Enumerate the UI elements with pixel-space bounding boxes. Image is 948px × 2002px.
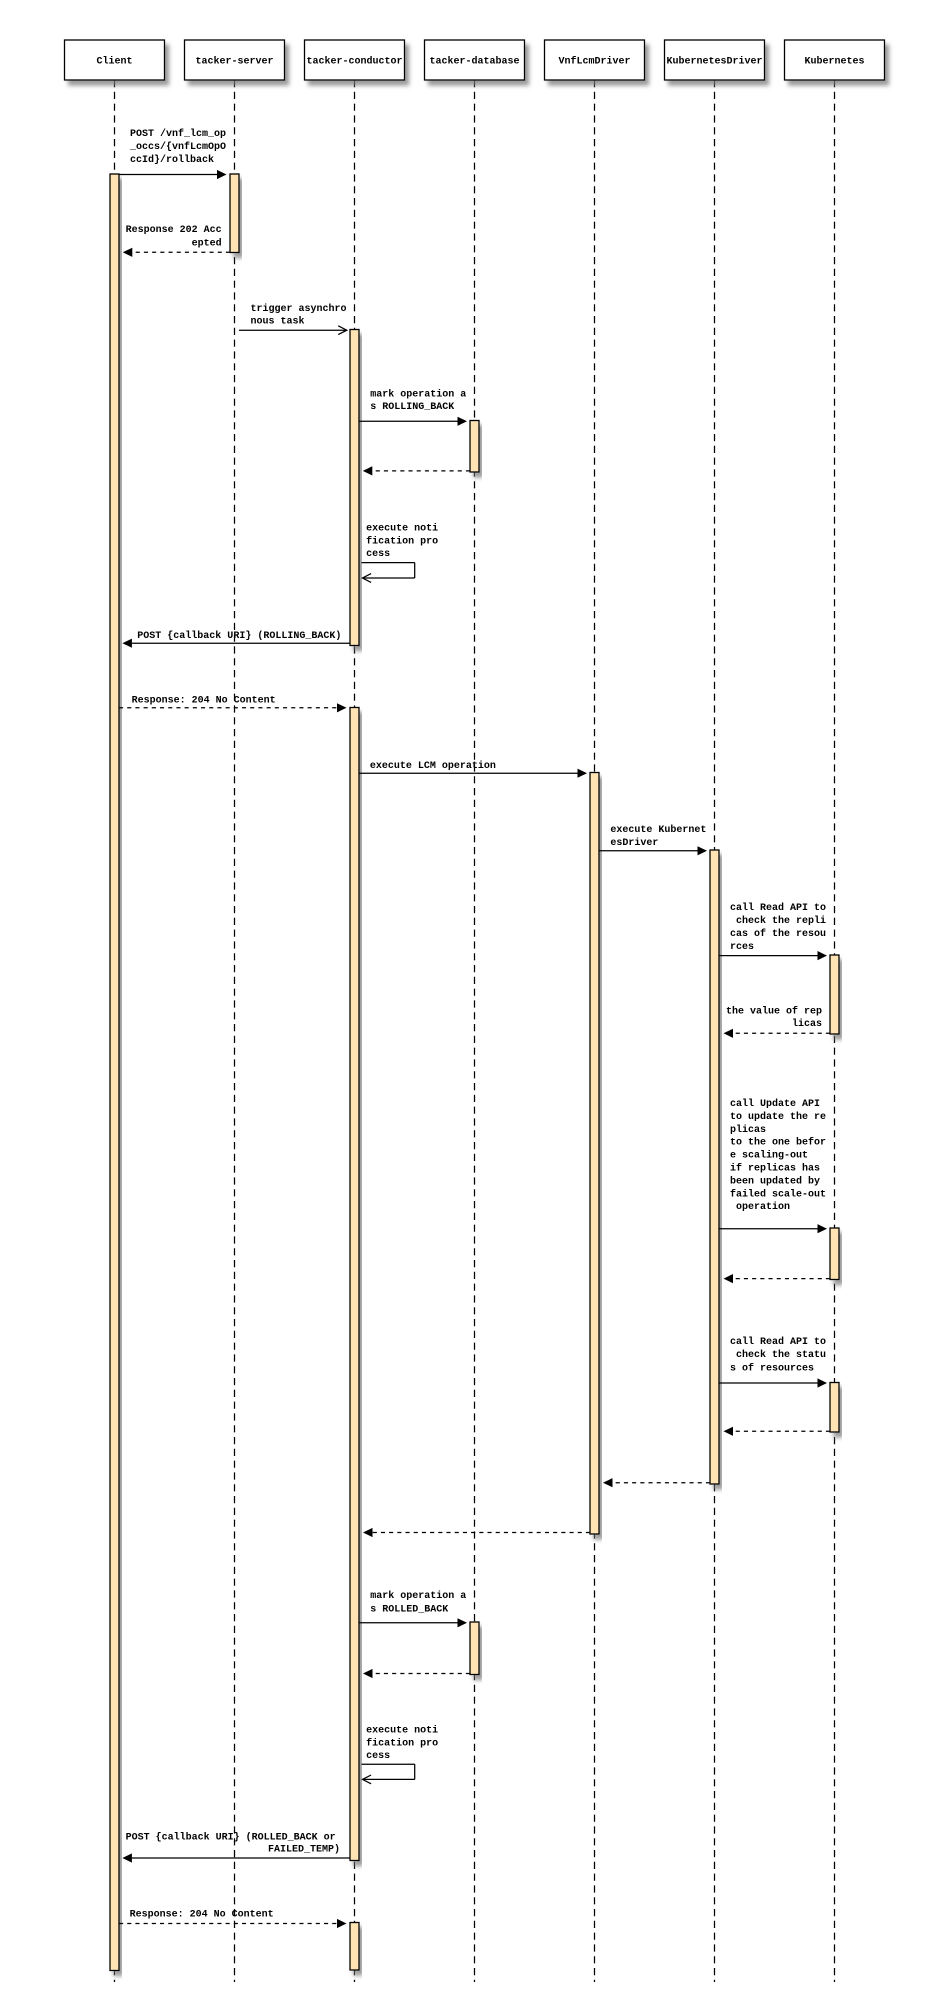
svg-text:tacker-database: tacker-database xyxy=(429,56,519,68)
svg-text:Kubernetes: Kubernetes xyxy=(804,56,864,68)
svg-text:tacker-server: tacker-server xyxy=(195,56,273,68)
svg-text:s ROLLING_BACK: s ROLLING_BACK xyxy=(370,402,454,413)
svg-text:nous task: nous task xyxy=(251,316,305,328)
svg-text:s of resources: s of resources xyxy=(730,1363,814,1375)
svg-text:check the statu: check the statu xyxy=(736,1349,826,1361)
svg-text:to update the re: to update the re xyxy=(730,1111,826,1123)
svg-text:POST {callback URI} (ROLLED_BA: POST {callback URI} (ROLLED_BACK or xyxy=(126,1832,336,1844)
svg-text:to the one befor: to the one befor xyxy=(730,1137,826,1149)
svg-text:failed scale-out: failed scale-out xyxy=(730,1188,826,1200)
svg-text:execute LCM operation: execute LCM operation xyxy=(370,760,496,772)
svg-text:KubernetesDriver: KubernetesDriver xyxy=(666,56,762,68)
svg-text:POST {callback URI} (ROLLING_B: POST {callback URI} (ROLLING_BACK) xyxy=(137,630,341,642)
svg-text:call Read API to: call Read API to xyxy=(730,902,826,914)
svg-text:FAILED_TEMP): FAILED_TEMP) xyxy=(268,1844,340,1856)
svg-text:Response 202 Acc: Response 202 Acc xyxy=(126,225,222,236)
svg-text:been updated by: been updated by xyxy=(730,1175,820,1187)
svg-text:mark operation a: mark operation a xyxy=(370,1590,466,1602)
svg-text:s ROLLED_BACK: s ROLLED_BACK xyxy=(370,1604,448,1615)
svg-text:tacker-conductor: tacker-conductor xyxy=(306,56,402,68)
svg-text:fication pro: fication pro xyxy=(366,535,438,547)
svg-text:licas: licas xyxy=(792,1018,822,1030)
svg-text:if replicas has: if replicas has xyxy=(730,1163,820,1175)
svg-text:cas of the resou: cas of the resou xyxy=(730,928,826,940)
svg-text:esDriver: esDriver xyxy=(610,837,658,849)
svg-text:Client: Client xyxy=(96,56,132,68)
svg-text:fication pro: fication pro xyxy=(366,1737,438,1749)
svg-text:epted: epted xyxy=(192,237,222,249)
svg-text:execute noti: execute noti xyxy=(366,522,438,534)
svg-text:call Update API: call Update API xyxy=(730,1098,820,1110)
svg-text:_occs/{vnfLcmOpO: _occs/{vnfLcmOpO xyxy=(129,141,226,153)
svg-text:Response: 204 No Content: Response: 204 No Content xyxy=(132,696,276,707)
svg-text:execute Kubernet: execute Kubernet xyxy=(610,824,706,836)
svg-text:mark operation a: mark operation a xyxy=(370,388,466,400)
svg-text:check the repli: check the repli xyxy=(736,915,826,927)
svg-text:ccId}/rollback: ccId}/rollback xyxy=(130,154,214,166)
svg-text:trigger asynchro: trigger asynchro xyxy=(251,303,347,315)
svg-text:plicas: plicas xyxy=(730,1124,766,1136)
svg-text:call Read API to: call Read API to xyxy=(730,1336,826,1348)
svg-text:e scaling-out: e scaling-out xyxy=(730,1150,808,1162)
svg-text:cess: cess xyxy=(366,1751,390,1762)
svg-text:VnfLcmDriver: VnfLcmDriver xyxy=(558,56,630,68)
svg-text:operation: operation xyxy=(736,1201,790,1213)
svg-text:Response: 204 No Content: Response: 204 No Content xyxy=(130,1910,274,1921)
svg-text:execute noti: execute noti xyxy=(366,1724,438,1736)
svg-text:the value of rep: the value of rep xyxy=(726,1005,822,1017)
svg-text:rces: rces xyxy=(730,942,754,953)
svg-text:POST /vnf_lcm_op: POST /vnf_lcm_op xyxy=(130,128,226,140)
svg-text:cess: cess xyxy=(366,549,390,560)
